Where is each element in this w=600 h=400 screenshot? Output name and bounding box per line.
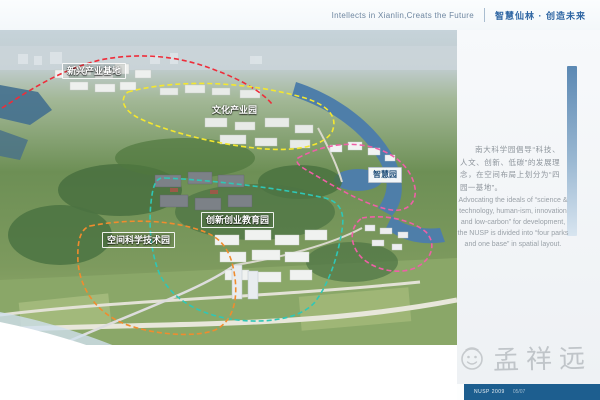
header-title-en: Intellects in Xianlin,Creats the Future xyxy=(332,11,474,20)
zone-label-smart-park: 智慧园 xyxy=(368,167,402,183)
header-title-zh: 智慧仙林 · 创造未来 xyxy=(495,9,586,22)
smiley-face-icon xyxy=(457,343,487,373)
zone-label-innovation-education-park: 创新创业教育园 xyxy=(201,212,274,228)
zone-label-space-science-park: 空间科学技术园 xyxy=(102,232,175,248)
header-divider xyxy=(484,8,485,22)
aerial-map: 新兴产业基地 文化产业园 智慧园 创新创业教育园 空间科学技术园 xyxy=(0,30,457,345)
watermark: 孟祥远 xyxy=(457,339,592,376)
page-header: Intellects in Xianlin,Creats the Future … xyxy=(0,0,600,30)
zone-label-emerging-industry-base: 新兴产业基地 xyxy=(62,63,126,79)
footer-page-number: 05/07 xyxy=(513,389,526,395)
sidebar-paragraph-zh: 南大科学园倡导“科技、人文、创新、低碳”的发展理念，在空间布局上划分为“四园一基… xyxy=(460,144,560,194)
watermark-name: 孟祥远 xyxy=(493,338,593,378)
sidebar-panel: 南大科学园倡导“科技、人文、创新、低碳”的发展理念，在空间布局上划分为“四园一基… xyxy=(457,30,600,384)
sidebar-paragraph-en: Advocating the ideals of “science & tech… xyxy=(457,195,569,250)
zone-label-culture-industry-park: 文化产业园 xyxy=(212,104,257,116)
footer-bar: NUSP 2009 05/07 xyxy=(464,384,600,400)
footer-left-text: NUSP 2009 xyxy=(474,389,505,395)
